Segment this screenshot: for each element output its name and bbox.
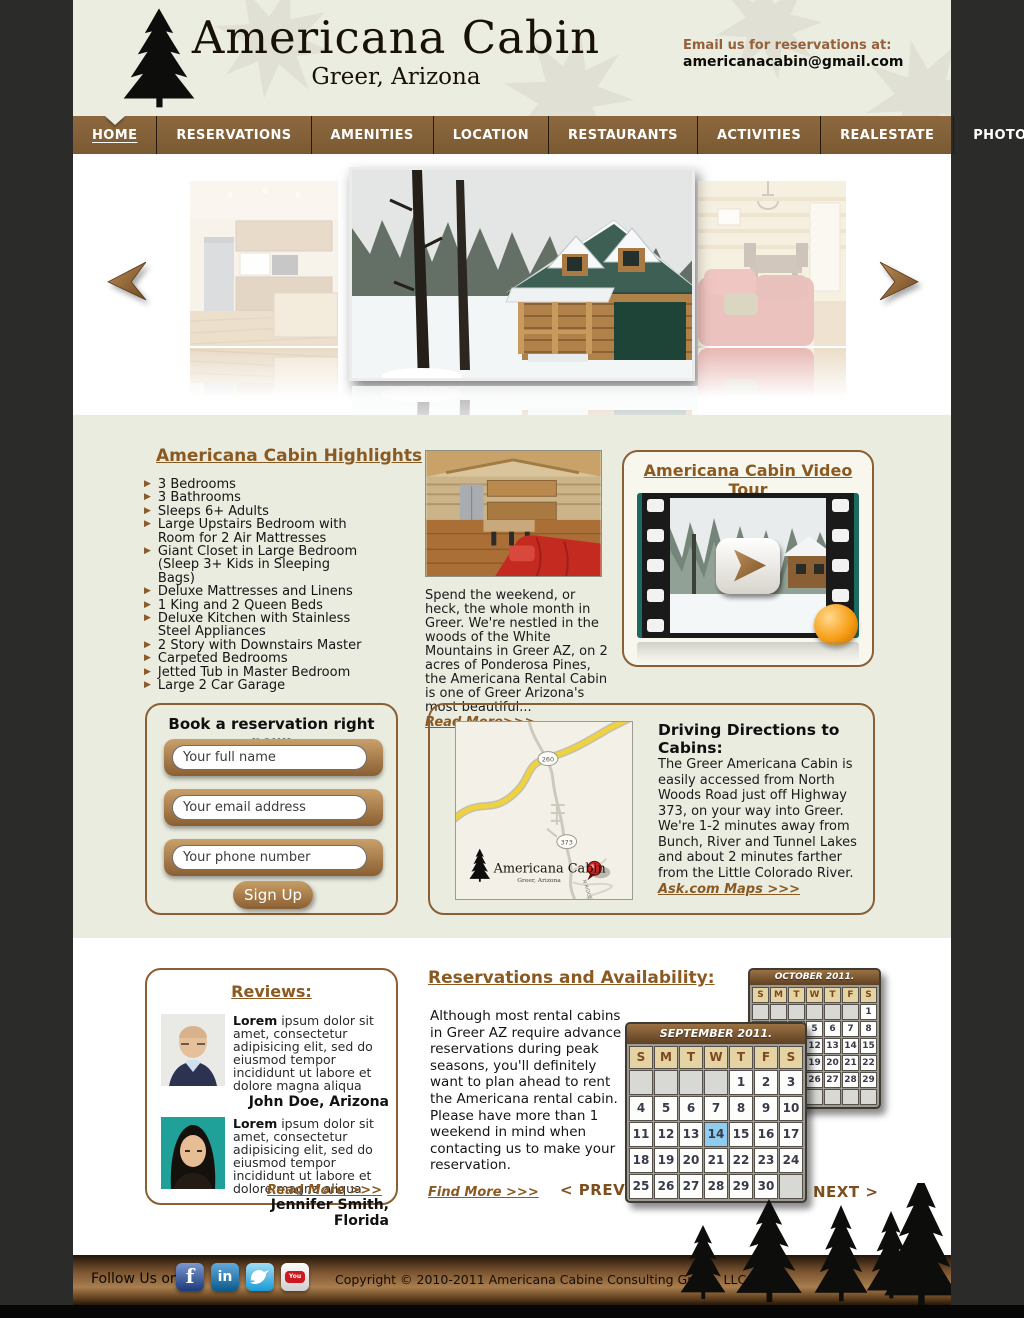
photo-carousel [73,154,951,415]
directions-body: The Greer Americana Cabin is easily acce… [658,757,864,881]
highlight-item: ▶3 Bathrooms [144,491,366,504]
reviewer-photo [161,1014,225,1086]
availability-body: Although most rental cabins in Greer AZ … [430,1008,628,1174]
calendar-empty-cell [842,1089,859,1105]
bullet-triangle-icon: ▶ [144,545,151,585]
highlight-item: ▶Carpeted Bedrooms [144,652,366,665]
carousel-reflection [698,348,846,406]
highlight-text: Sleeps 6+ Adults [158,505,269,518]
calendar-prev-button[interactable]: < PREV [560,1181,625,1199]
bottom-black-bar [0,1305,1024,1318]
calendar-day-cell[interactable]: 2 [754,1070,778,1095]
calendar-day-cell[interactable]: 26 [806,1072,823,1088]
calendar-day-cell[interactable]: 8 [729,1096,753,1121]
calendar-day-header: S [629,1046,653,1069]
facebook-icon[interactable]: f [176,1263,204,1291]
highlight-item: ▶Large 2 Car Garage [144,679,366,692]
sign-up-button[interactable]: Sign Up [233,881,313,909]
carousel-cabin-photo[interactable] [349,167,695,381]
calendar-day-header: W [704,1046,728,1069]
calendar-empty-cell [788,1004,805,1020]
bullet-triangle-icon: ▶ [144,679,151,692]
calendar-day-cell[interactable]: 13 [824,1038,841,1054]
calendar-day-cell[interactable]: 25 [629,1174,653,1199]
location-map[interactable]: 260 373 Americana Cabin Greer, Arizona N… [455,721,633,900]
bullet-triangle-icon: ▶ [144,478,151,491]
calendar-empty-cell [806,1089,823,1105]
highlight-item: ▶1 King and 2 Queen Beds [144,599,366,612]
highlight-item: ▶Jetted Tub in Master Bedroom [144,666,366,679]
calendar-empty-cell [704,1070,728,1095]
highlight-text: Jetted Tub in Master Bedroom [158,666,350,679]
bullet-triangle-icon: ▶ [144,599,151,612]
calendar-day-cell[interactable]: 21 [842,1055,859,1071]
reviews-read-more-link[interactable]: Read More >>> [267,1183,382,1198]
calendar-september-2011: SEPTEMBER 2011.SMTWTFS123456789101112131… [625,1022,807,1203]
main-nav: HOMERESERVATIONSAMENITIESLOCATIONRESTAUR… [73,116,951,154]
calendar-day-cell[interactable]: 19 [806,1055,823,1071]
reviewer-photo [161,1117,225,1189]
reservation-form: Book a reservation right now: Sign Up [145,703,398,915]
calendar-day-cell[interactable]: 18 [629,1148,653,1173]
calendar-day-header: F [754,1046,778,1069]
calendar-day-cell[interactable]: 11 [629,1122,653,1147]
carousel-kitchen-photo[interactable] [190,181,338,346]
calendar-empty-cell [654,1070,678,1095]
film-sprocket-holes [647,499,664,632]
map-logo-title: Americana Cabin [493,861,606,876]
highlight-item: ▶3 Bedrooms [144,478,366,491]
cabin-interior-photo [425,450,602,577]
calendar-day-cell[interactable]: 12 [654,1122,678,1147]
linkedin-icon[interactable]: in [211,1263,239,1291]
availability-title: Reservations and Availability: [428,968,715,988]
calendar-day-cell[interactable]: 27 [824,1072,841,1088]
follow-us-label: Follow Us on: [91,1271,184,1287]
bullet-triangle-icon: ▶ [144,612,151,639]
calendar-day-header: T [824,987,841,1003]
calendar-day-cell[interactable]: 1 [729,1070,753,1095]
bullet-triangle-icon: ▶ [144,585,151,598]
bullet-triangle-icon: ▶ [144,505,151,518]
calendar-day-cell[interactable]: 6 [679,1096,703,1121]
review-author: Jennifer Smith, Florida [233,1197,389,1229]
highlight-text: Deluxe Kitchen with Stainless Steel Appl… [158,612,366,639]
calendar-day-cell[interactable]: 3 [779,1070,803,1095]
site-subtitle: Greer, Arizona [181,64,611,90]
calendar-day-header: S [779,1046,803,1069]
twitter-icon[interactable] [246,1263,274,1291]
active-tab-notch [105,116,125,125]
calendar-day-cell[interactable]: 28 [842,1072,859,1088]
calendar-day-cell[interactable]: 14 [842,1038,859,1054]
calendar-day-cell[interactable]: 5 [654,1096,678,1121]
calendar-day-header: M [770,987,787,1003]
map-shield-260: 260 [542,756,554,764]
driving-directions-box: 260 373 Americana Cabin Greer, Arizona N… [428,703,875,915]
highlight-text: Large 2 Car Garage [158,679,285,692]
calendar-day-cell[interactable]: 24 [779,1148,803,1173]
intro-text: Spend the weekend, or heck, the whole mo… [425,588,608,715]
highlight-text: 3 Bathrooms [158,491,241,504]
calendar-day-header: W [806,987,823,1003]
calendar-day-header: T [729,1046,753,1069]
name-field-wrap [164,739,383,776]
highlight-item: ▶Sleeps 6+ Adults [144,505,366,518]
email-label: Email us for reservations at: [683,38,933,54]
page-column: Americana Cabin Greer, Arizona Email us … [73,0,951,1318]
calendar-day-header: S [752,987,769,1003]
calendar-day-cell[interactable]: 4 [629,1096,653,1121]
bullet-triangle-icon: ▶ [144,491,151,504]
full-name-input[interactable] [172,745,367,770]
review-author: John Doe, Arizona [233,1094,389,1110]
bullet-triangle-icon: ▶ [144,652,151,665]
calendar-empty-cell [842,1004,859,1020]
orange-ball-decoration [814,604,858,646]
carousel-reflection [190,348,338,406]
calendar-day-cell[interactable]: 22 [860,1055,877,1071]
bullet-triangle-icon: ▶ [144,666,151,679]
site-logo: Americana Cabin Greer, Arizona [181,12,611,90]
carousel-prev-arrow[interactable] [105,260,149,302]
calendar-day-cell[interactable]: 15 [729,1122,753,1147]
nav-item-amenities[interactable]: AMENITIES [312,116,434,154]
video-tour-box: Americana Cabin Video Tour [622,450,874,667]
reviews-title: Reviews: [147,982,396,1001]
calendar-empty-cell [752,1004,769,1020]
calendar-empty-cell [806,1004,823,1020]
calendar-day-cell[interactable]: 13 [679,1122,703,1147]
site-header: Americana Cabin Greer, Arizona Email us … [73,0,951,116]
calendar-day-cell[interactable]: 20 [679,1148,703,1173]
calendar-day-header: M [654,1046,678,1069]
highlight-text: Giant Closet in Large Bedroom (Sleep 3+ … [158,545,366,585]
calendar-day-cell[interactable]: 16 [754,1122,778,1147]
calendar-day-cell[interactable]: 5 [806,1021,823,1037]
site-title: Americana Cabin [181,12,611,64]
calendar-day-cell[interactable]: 8 [860,1021,877,1037]
page-canvas: Americana Cabin Greer, Arizona Email us … [0,0,1024,1318]
calendar-day-cell[interactable]: 22 [729,1148,753,1173]
calendar-day-cell[interactable]: 1 [860,1004,877,1020]
pine-trees-decoration [669,1183,951,1305]
ask-maps-link[interactable]: Ask.com Maps >>> [658,882,800,897]
film-strip [637,493,859,638]
highlight-text: 3 Bedrooms [158,478,236,491]
main-content-band: Americana Cabin Highlights ▶3 Bedrooms▶3… [73,415,951,938]
nav-item-activities[interactable]: ACTIVITIES [698,116,821,154]
youtube-icon-core: You [285,1271,305,1283]
calendar-day-cell[interactable]: 14 [704,1122,728,1147]
calendar-day-cell[interactable]: 12 [806,1038,823,1054]
calendar-day-cell[interactable]: 20 [824,1055,841,1071]
map-logo-subtitle: Greer, Arizona [517,877,561,884]
carousel-next-arrow[interactable] [877,260,921,302]
calendar-day-cell[interactable]: 29 [860,1072,877,1088]
highlight-text: Large Upstairs Bedroom with Room for 2 A… [158,518,366,545]
calendar-day-cell[interactable]: 7 [842,1021,859,1037]
highlights-list: ▶3 Bedrooms▶3 Bathrooms▶Sleeps 6+ Adults… [144,478,366,693]
calendar-day-cell[interactable]: 17 [779,1122,803,1147]
calendar-empty-cell [860,1089,877,1105]
calendar-day-cell[interactable]: 19 [654,1148,678,1173]
calendar-day-header: F [842,987,859,1003]
bullet-triangle-icon: ▶ [144,639,151,652]
calendar-day-cell[interactable]: 6 [824,1021,841,1037]
youtube-icon[interactable]: You [281,1263,309,1291]
email-input[interactable] [172,795,367,820]
find-more-link[interactable]: Find More >>> [428,1185,539,1200]
calendar-empty-cell [824,1089,841,1105]
calendar-empty-cell [679,1070,703,1095]
calendar-empty-cell [770,1004,787,1020]
reviews-box: Reviews: Lorem ipsum dolor sit amet, con… [145,968,398,1205]
reservation-email-block: Email us for reservations at: americanac… [683,38,933,71]
play-button[interactable] [716,538,780,594]
calendar-empty-cell [824,1004,841,1020]
highlight-item: ▶2 Story with Downstairs Master [144,639,366,652]
map-shield-373: 373 [561,839,573,847]
nav-item-photo-album[interactable]: PHOTO ALBUM [954,116,1024,154]
highlights-title: Americana Cabin Highlights [156,446,422,466]
bullet-triangle-icon: ▶ [144,518,151,545]
nav-item-restaurants[interactable]: RESTAURANTS [549,116,698,154]
review-item: Lorem ipsum dolor sit amet, consectetur … [161,1014,389,1110]
highlight-text: Deluxe Mattresses and Linens [158,585,353,598]
calendar-day-cell[interactable]: 10 [779,1096,803,1121]
review-text: Lorem ipsum dolor sit amet, consectetur … [233,1014,389,1092]
highlight-item: ▶Deluxe Mattresses and Linens [144,585,366,598]
nav-item-realestate[interactable]: REALESTATE [821,116,954,154]
calendar-day-cell[interactable]: 9 [754,1096,778,1121]
calendar-day-cell[interactable]: 21 [704,1148,728,1173]
highlight-item: ▶Deluxe Kitchen with Stainless Steel App… [144,612,366,639]
directions-title: Driving Directions to Cabins: [658,721,873,757]
phone-field-wrap [164,839,383,876]
calendar-title: SEPTEMBER 2011. [627,1024,805,1044]
calendar-empty-cell [629,1070,653,1095]
play-icon [734,550,766,582]
film-reflection [637,642,859,664]
calendar-grid: SMTWTFS123456789101112131415161718192021… [627,1044,805,1201]
calendar-title: OCTOBER 2011. [750,970,879,985]
calendar-day-cell[interactable]: 15 [860,1038,877,1054]
highlight-item: ▶Large Upstairs Bedroom with Room for 2 … [144,518,366,545]
highlight-text: 1 King and 2 Queen Beds [158,599,323,612]
email-address-link[interactable]: americanacabin@gmail.com [683,54,933,71]
nav-item-reservations[interactable]: RESERVATIONS [157,116,311,154]
nav-item-location[interactable]: LOCATION [434,116,549,154]
highlight-text: 2 Story with Downstairs Master [158,639,362,652]
social-icons-row: f in You [176,1263,309,1291]
calendar-day-cell[interactable]: 7 [704,1096,728,1121]
email-field-wrap [164,789,383,826]
calendar-day-header: T [679,1046,703,1069]
calendar-day-header: T [788,987,805,1003]
highlight-item: ▶Giant Closet in Large Bedroom (Sleep 3+… [144,545,366,585]
phone-input[interactable] [172,845,367,870]
carousel-living-room-photo[interactable] [698,181,846,346]
highlight-text: Carpeted Bedrooms [158,652,288,665]
calendar-day-cell[interactable]: 23 [754,1148,778,1173]
review-item: Lorem ipsum dolor sit amet, consectetur … [161,1117,389,1229]
calendar-day-header: S [860,987,877,1003]
